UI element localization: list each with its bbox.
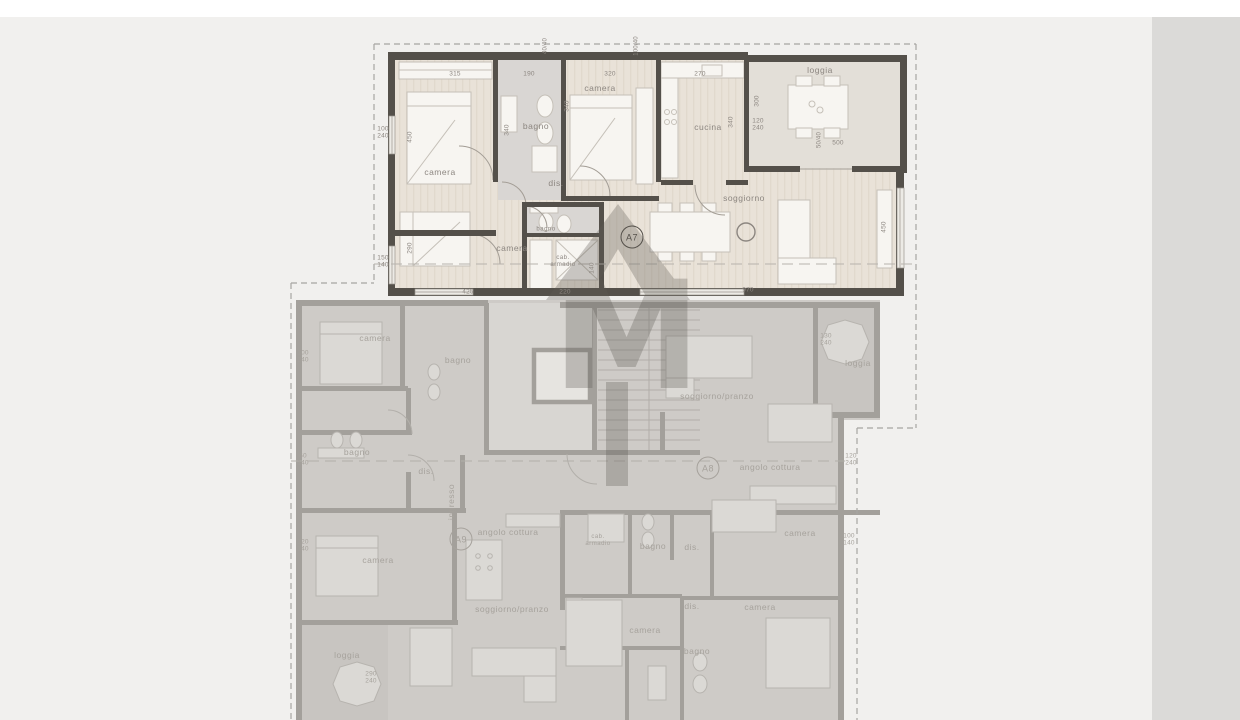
floor-plan-graphic bbox=[0, 0, 1240, 720]
gray-floor-plan bbox=[296, 300, 880, 720]
title-sidebar: PIANO SECONDO SCALA 1:100 APPARTAMENTO A… bbox=[1152, 17, 1240, 720]
apartment-a7-plan bbox=[388, 52, 907, 296]
floor-plan-page: M camerabagnocameracucinaloggiadis.soggi… bbox=[0, 0, 1240, 720]
